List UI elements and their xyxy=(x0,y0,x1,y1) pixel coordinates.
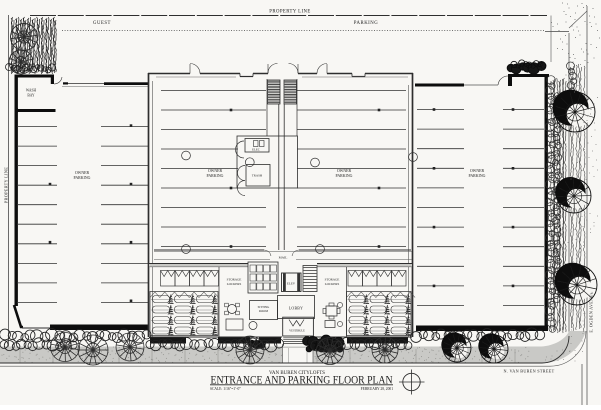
svg-text:OWNER: OWNER xyxy=(337,169,352,173)
svg-text:OWNER: OWNER xyxy=(208,169,223,173)
svg-text:STORAGE: STORAGE xyxy=(227,278,242,282)
svg-text:N. VAN BUREN STREET: N. VAN BUREN STREET xyxy=(504,369,555,374)
svg-text:MAIL: MAIL xyxy=(279,256,288,260)
svg-text:ROOM: ROOM xyxy=(259,309,268,313)
svg-text:PARKING: PARKING xyxy=(469,174,486,178)
svg-text:STORAGE: STORAGE xyxy=(325,278,340,282)
svg-text:PARKING: PARKING xyxy=(336,174,353,178)
svg-text:PARKING: PARKING xyxy=(207,174,224,178)
svg-text:ELEC: ELEC xyxy=(252,148,260,152)
svg-text:ENTRANCE AND PARKING FLOOR PLA: ENTRANCE AND PARKING FLOOR PLAN xyxy=(211,373,394,386)
svg-text:PROPERTY LINE: PROPERTY LINE xyxy=(4,167,9,203)
svg-text:OWNER: OWNER xyxy=(75,171,90,175)
svg-text:BAY: BAY xyxy=(27,94,35,98)
svg-text:PARKING: PARKING xyxy=(354,21,378,26)
svg-text:TRASH: TRASH xyxy=(252,174,263,178)
svg-text:LOBBY: LOBBY xyxy=(289,307,303,311)
svg-text:SCALE: 1/16”=1’-0”: SCALE: 1/16”=1’-0” xyxy=(210,387,241,391)
svg-text:PARKING: PARKING xyxy=(74,176,91,180)
svg-text:OWNER: OWNER xyxy=(470,169,485,173)
svg-text:ELEV: ELEV xyxy=(287,282,296,286)
svg-text:LOCKERS: LOCKERS xyxy=(325,282,340,286)
svg-text:VESTIBULE: VESTIBULE xyxy=(289,329,305,333)
svg-text:GUEST: GUEST xyxy=(93,21,111,26)
svg-text:PROPERTY LINE: PROPERTY LINE xyxy=(269,10,310,15)
svg-text:WASH: WASH xyxy=(26,89,37,93)
svg-text:LOCKERS: LOCKERS xyxy=(227,282,242,286)
